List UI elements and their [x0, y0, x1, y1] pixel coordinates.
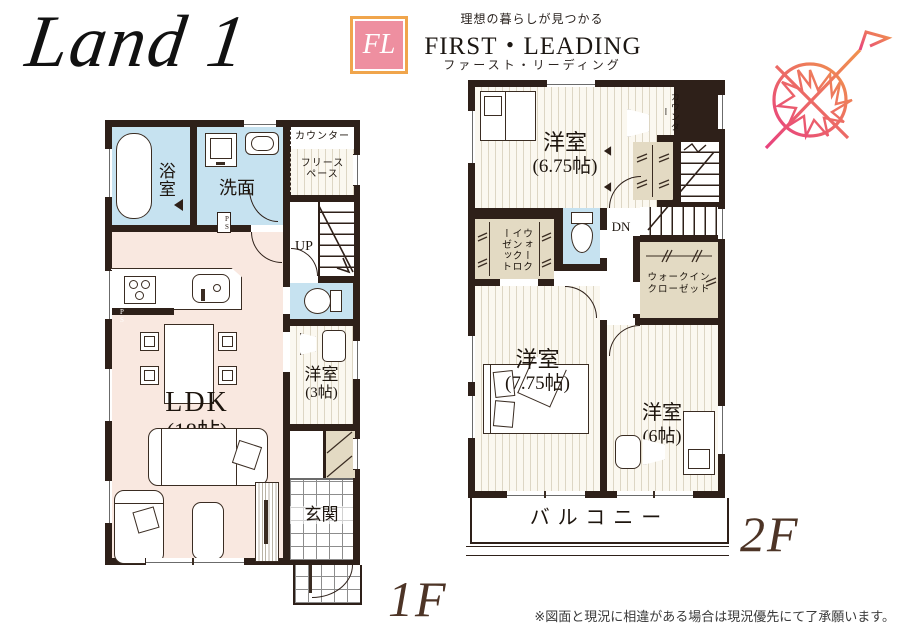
window	[105, 148, 112, 198]
entrance-genkan: 玄関	[290, 478, 353, 560]
hanger-marks	[640, 242, 718, 318]
bathtub-icon	[116, 133, 152, 219]
corner-sofa-icon	[114, 490, 164, 564]
sliding-window-tick	[192, 558, 194, 565]
floorplan-1f: 浴室 洗面 カウンター フリースペース UP 洋室 (3	[105, 120, 360, 565]
dining-chair-icon	[140, 366, 159, 385]
room-toilet-1f	[290, 283, 353, 319]
room-ldk: PS LDK (18帖)	[112, 232, 283, 558]
chair-icon	[615, 435, 641, 469]
dining-chair-icon	[218, 366, 237, 385]
western3-sliding-door	[283, 332, 290, 372]
wic-left-door-opening	[500, 279, 538, 286]
walk-in-closet-left: ウォークインクローゼット	[475, 219, 554, 279]
brand-tagline: 理想の暮らしが見つかる	[432, 10, 632, 27]
sliding-window	[145, 558, 245, 565]
window	[353, 438, 360, 470]
toilet-icon	[304, 288, 331, 314]
western775-size: (7.75帖)	[475, 374, 600, 394]
room-bath: 浴室	[112, 127, 190, 225]
toilet-door-opening	[283, 287, 290, 314]
pipe-space-label-2: PS	[113, 307, 125, 325]
coffee-table-icon	[192, 502, 224, 560]
room-toilet-2f	[563, 208, 600, 264]
bath-door-icon	[174, 199, 183, 211]
ldk-door-opening	[251, 225, 283, 232]
window	[105, 270, 112, 320]
window	[718, 405, 725, 455]
chair-icon	[300, 333, 316, 355]
stairs-2f-direction	[640, 142, 718, 235]
balcony-label: バルコニー	[472, 508, 727, 529]
western675-size: (6.75帖)	[495, 157, 635, 177]
window	[718, 208, 725, 240]
window	[546, 80, 596, 87]
entrance-porch	[293, 565, 362, 605]
western775-label: 洋室	[485, 348, 590, 371]
stairs-entry-opening	[633, 210, 640, 236]
floor-label-2f: 2F	[740, 505, 800, 563]
front-door-arc	[312, 565, 353, 598]
balcony-sliding-door	[506, 491, 586, 498]
kitchen-sink-icon	[192, 274, 230, 303]
floorplan-2f: 洋室 (6.75帖) カウンター DN	[468, 80, 725, 498]
entrance-hall	[290, 431, 323, 478]
chair-icon	[627, 109, 649, 137]
window	[718, 94, 725, 130]
sliding-tick	[653, 491, 655, 498]
toilet-tank-icon	[330, 290, 342, 312]
free-space-label: フリースペース	[296, 159, 349, 180]
balcony: バルコニー	[470, 498, 729, 544]
western3-size: (3帖)	[290, 386, 353, 402]
plan-title: Land 1	[19, 0, 333, 98]
ldk-label: LDK	[132, 388, 262, 417]
sink-icon	[245, 132, 279, 155]
counter-nook-2f: カウンター	[657, 87, 674, 135]
dining-chair-icon	[218, 332, 237, 351]
room-washroom: 洗面	[197, 127, 283, 225]
window	[353, 340, 360, 380]
area-counter: カウンター	[290, 127, 354, 149]
balcony-rail	[466, 546, 729, 556]
desk-icon	[322, 330, 346, 362]
brand-monogram: FL	[363, 29, 396, 61]
brand-logo-mark: FL	[350, 16, 408, 74]
compass-north-icon	[748, 18, 893, 163]
tv-board-icon	[255, 482, 279, 562]
window	[105, 368, 112, 422]
stairs-hall-opening	[290, 276, 318, 283]
window	[353, 154, 360, 186]
window	[468, 335, 475, 383]
w6-door-opening	[607, 318, 635, 325]
walk-in-closet-right: ウォークイン クローゼット	[640, 242, 718, 318]
closet-diagonal-marks	[326, 431, 353, 478]
disclaimer-text: ※図面と現況に相違がある場合は現況優先にて了承願います。	[430, 606, 895, 625]
brand-name-kana: ファースト・リーディング	[425, 56, 640, 73]
toilet2-door-opening	[600, 230, 607, 258]
closet-door-mark	[604, 146, 611, 156]
dining-chair-icon	[140, 332, 159, 351]
area-free-space: フリースペース	[290, 149, 354, 195]
room-western-3: 洋室 (3帖)	[290, 326, 353, 424]
counter-2f-label: カウンター	[660, 89, 679, 135]
window	[468, 395, 475, 439]
washroom-door-arc	[249, 189, 278, 222]
pipe-space-label-1: PS	[217, 212, 231, 233]
shelf-icon	[683, 411, 715, 475]
western3-label: 洋室	[290, 366, 353, 384]
entrance-label: 玄関	[290, 506, 353, 524]
sliding-tick	[544, 491, 546, 498]
closet-door-mark	[604, 182, 611, 192]
toilet-icon	[571, 223, 593, 253]
window	[105, 480, 112, 524]
sofa-icon	[148, 428, 268, 486]
wic-right-door-opening	[633, 282, 640, 314]
entrance-closet	[324, 431, 355, 478]
balcony-sliding-door	[616, 491, 694, 498]
room-bath-label: 浴室	[156, 145, 174, 215]
window	[468, 110, 475, 164]
counter-label: カウンター	[291, 132, 354, 143]
w775-door-opening	[565, 279, 598, 286]
washing-machine-icon	[205, 133, 237, 167]
stove-icon	[124, 276, 156, 304]
window	[243, 120, 277, 127]
stairs-1f-direction	[315, 202, 355, 276]
hanger-marks	[475, 219, 554, 279]
stairs-down-label: DN	[608, 220, 634, 234]
